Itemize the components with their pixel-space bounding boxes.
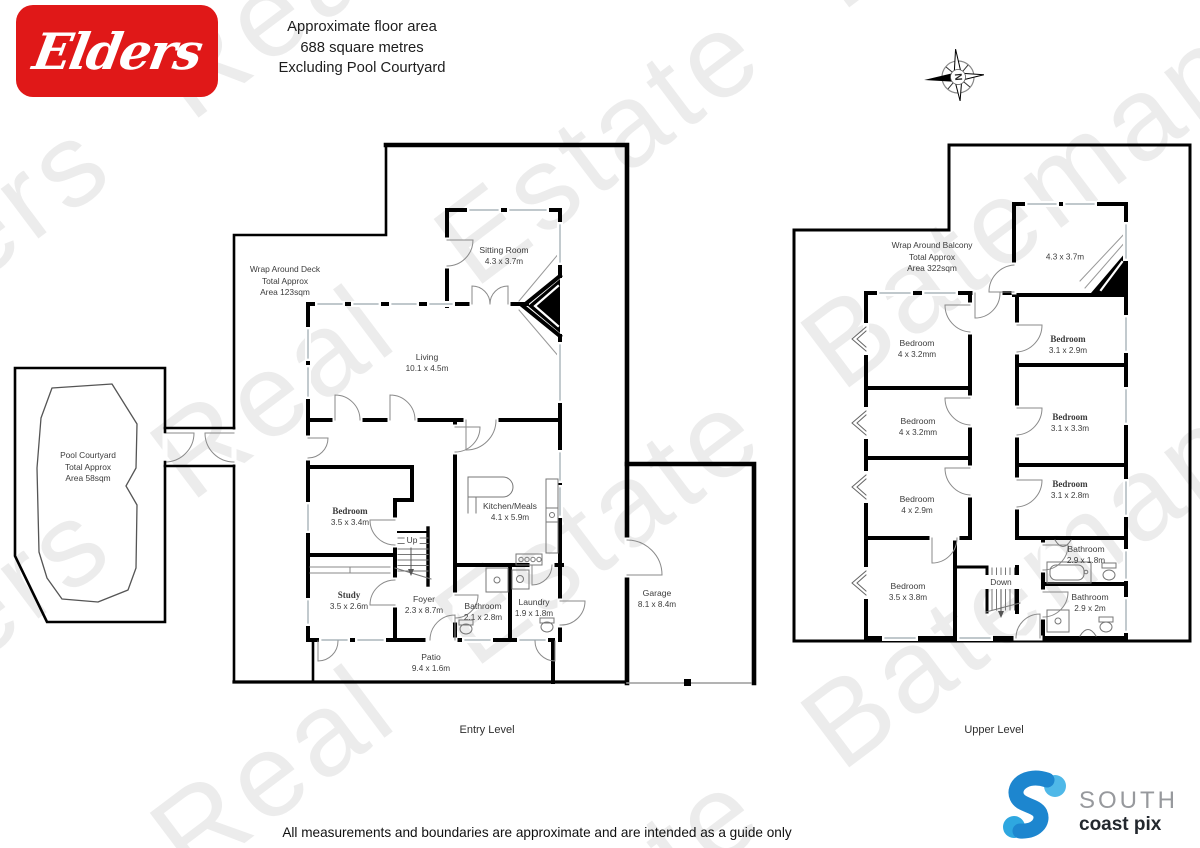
upper-level-caption: Upper Level — [964, 724, 1023, 736]
room-label-study: Study 3.5 x 2.6m — [330, 590, 368, 612]
room-label-bedroom-2: Bedroom 4 x 3.2mm — [899, 416, 937, 438]
deck-area-label: Wrap Around Deck Total Approx Area 123sq… — [250, 264, 320, 299]
wardrobe — [310, 567, 390, 573]
room-label-living: Living 10.1 x 4.5m — [406, 352, 449, 374]
pool-courtyard-label: Pool Courtyard Total Approx Area 58sqm — [60, 450, 116, 485]
room-label-laundry: Laundry 1.9 x 1.8m — [515, 597, 553, 619]
entry-level-caption: Entry Level — [459, 724, 514, 736]
floor-area-line: 688 square metres — [237, 38, 487, 59]
floorplan-page: Elders Real Estate Batemans Bay Elders R… — [0, 0, 1200, 848]
pool — [37, 384, 137, 602]
elders-logo-text: Elders — [29, 22, 206, 81]
compass-north-label: N — [954, 73, 966, 81]
floor-area-note: Approximate floor area 688 square metres… — [237, 17, 487, 79]
floor-area-line: Excluding Pool Courtyard — [237, 58, 487, 79]
windows — [308, 210, 560, 640]
upper-fireplace — [1080, 232, 1126, 293]
upper-level-plan — [794, 145, 1190, 641]
room-label-bedroom-entry: Bedroom 3.5 x 3.4m — [331, 506, 369, 528]
room-label-foyer: Foyer 2.3 x 8.7m — [405, 594, 443, 616]
room-label-sitting-room: Sitting Room 4.3 x 3.7m — [479, 245, 528, 267]
room-label-bathroom-2: Bathroom 2.9 x 2m — [1071, 592, 1108, 614]
room-label-upper-sitting: 4.3 x 3.7m — [1046, 252, 1084, 263]
balcony-boundary — [794, 145, 1190, 641]
floorplan-drawing — [0, 0, 1200, 848]
pix-mark-icon — [1003, 775, 1066, 838]
elders-logo: Elders — [16, 5, 218, 97]
floor-area-line: Approximate floor area — [237, 17, 487, 38]
balcony-area-label: Wrap Around Balcony Total Approx Area 32… — [892, 240, 973, 275]
room-label-bedroom-5: Bedroom 3.1 x 2.9m — [1049, 334, 1087, 356]
room-label-patio: Patio 9.4 x 1.6m — [412, 652, 450, 674]
room-label-bathroom-entry: Bathroom 2.1 x 2.8m — [464, 601, 502, 623]
pix-text-south: SOUTH — [1079, 787, 1178, 814]
pix-text-coastpix: coast pix — [1079, 814, 1162, 835]
room-label-bathroom-1: Bathroom 2.9 x 1.8m — [1067, 544, 1105, 566]
room-label-bedroom-3: Bedroom 4 x 2.9m — [900, 494, 935, 516]
stairs-up-label: Up — [405, 535, 420, 545]
room-label-garage: Garage 8.1 x 8.4m — [638, 588, 676, 610]
room-label-bedroom-4: Bedroom 3.5 x 3.8m — [889, 581, 927, 603]
pool-courtyard — [15, 368, 165, 622]
room-label-kitchen-meals: Kitchen/Meals 4.1 x 5.9m — [483, 501, 537, 523]
south-coast-pix-logo: SOUTH coast pix — [1000, 770, 1195, 845]
room-label-bedroom-7: Bedroom 3.1 x 2.8m — [1051, 479, 1089, 501]
disclaimer-text: All measurements and boundaries are appr… — [0, 825, 1074, 840]
room-label-bedroom-6: Bedroom 3.1 x 3.3m — [1051, 412, 1089, 434]
stairs-down-label: Down — [988, 577, 1013, 587]
room-label-bedroom-1: Bedroom 4 x 3.2mm — [898, 338, 936, 360]
compass-icon: N — [920, 40, 996, 116]
